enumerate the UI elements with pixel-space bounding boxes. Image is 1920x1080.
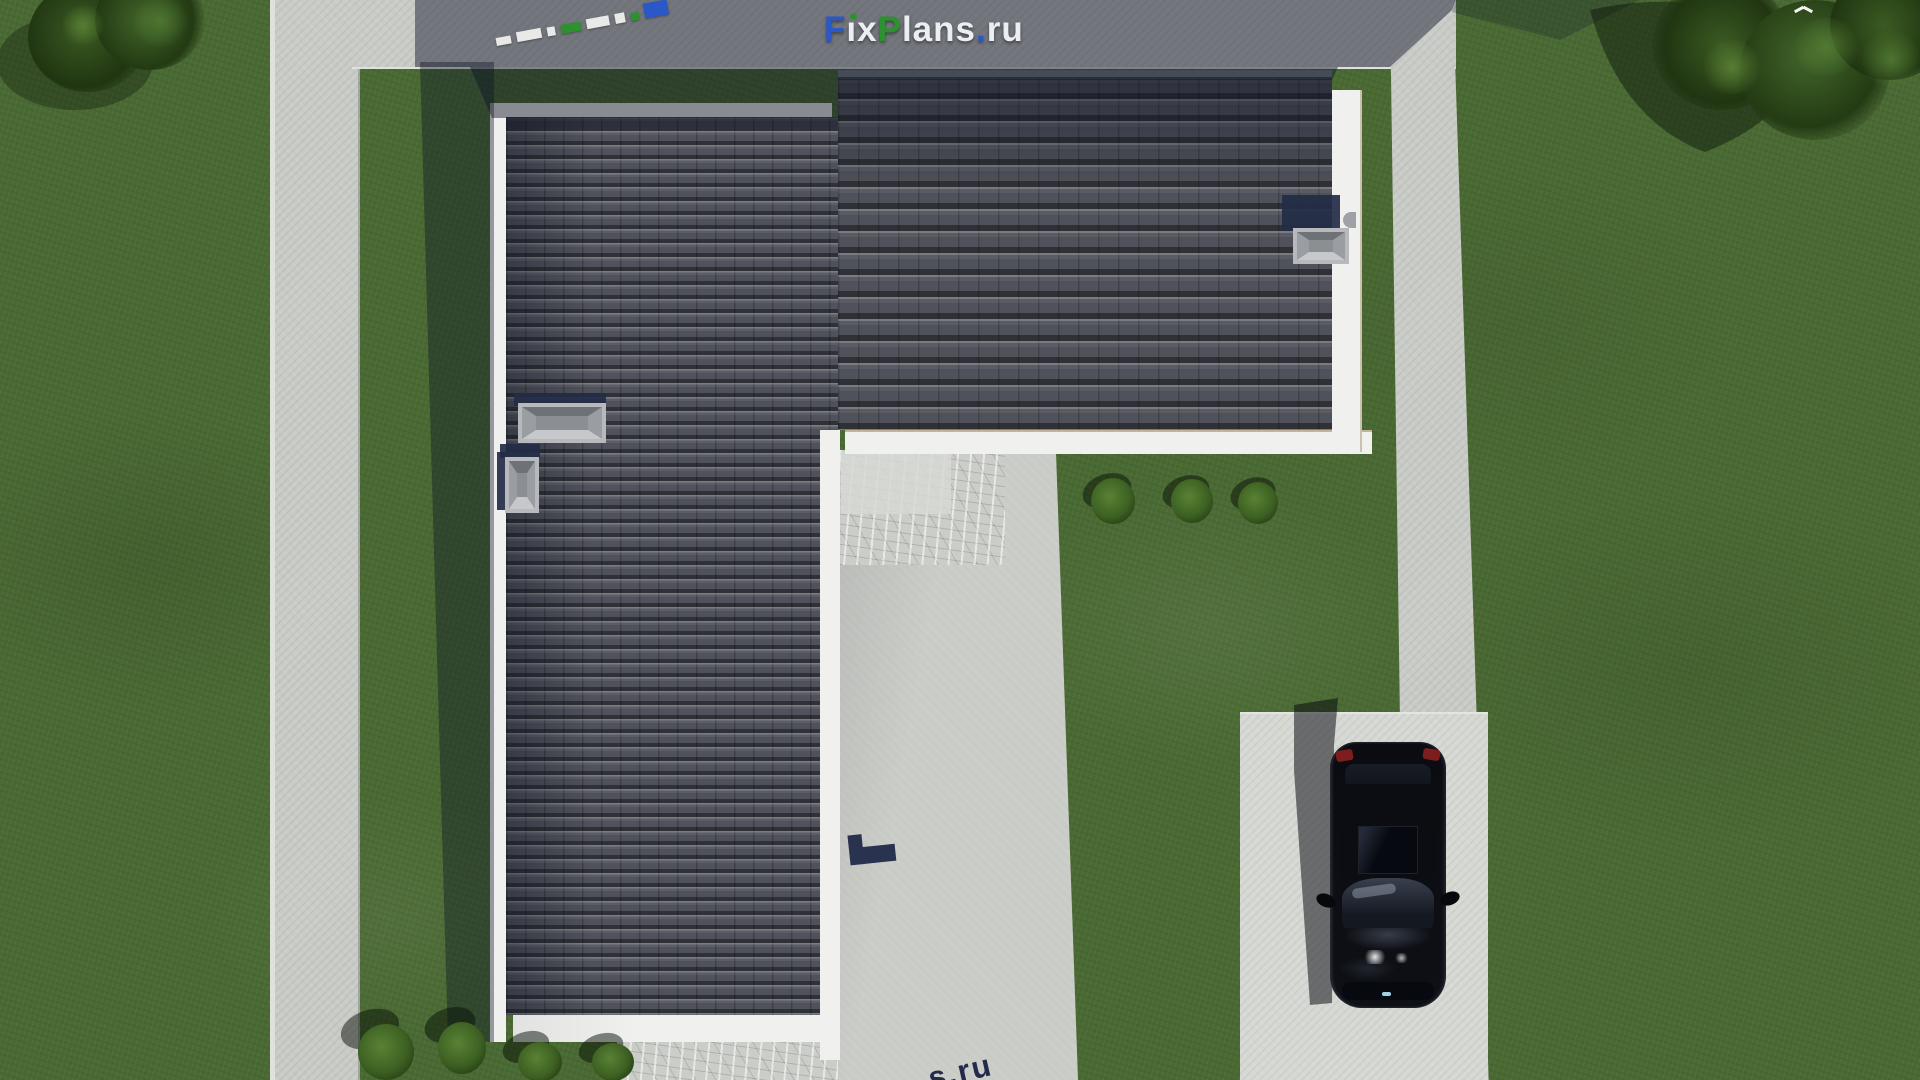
car-hood [1336, 928, 1440, 986]
bush [358, 1024, 414, 1080]
house-west-shadow [420, 62, 494, 1042]
tree-foliage-highlight [1862, 28, 1920, 90]
site-plan-render: FıxPlans.ru s.ru [0, 0, 1920, 1080]
bush [1238, 482, 1278, 524]
bush [1091, 478, 1135, 524]
brand-letter: x [857, 10, 877, 49]
car-front-bumper [1342, 982, 1434, 1000]
bush [592, 1043, 634, 1080]
brand-letter: . [976, 10, 987, 49]
tree-foliage-highlight [1700, 40, 1764, 94]
car-front-marker [1382, 992, 1391, 996]
tree-foliage-highlight [1790, 18, 1862, 76]
bird [1794, 4, 1814, 14]
watermark-block [546, 26, 556, 36]
brand-logo: FıxPlans.ru [824, 10, 1024, 50]
car [1290, 690, 1500, 1020]
shadow-overlay [0, 0, 1920, 1080]
brand-letter: lans [902, 10, 976, 49]
watermark-block [614, 12, 626, 24]
car-hood-glint [1394, 953, 1409, 963]
bush [1171, 479, 1213, 523]
car-sunroof [1358, 826, 1418, 874]
car-hood-glint [1362, 950, 1388, 964]
watermark-block [630, 12, 639, 21]
bush [438, 1022, 486, 1074]
brand-letter: P [878, 10, 902, 49]
brand-letter: F [824, 10, 846, 49]
bird-wing [1803, 6, 1813, 13]
tree-foliage-highlight [60, 5, 106, 45]
bush [518, 1042, 562, 1080]
logo-i-dot [850, 13, 857, 20]
brand-letter: ru [987, 10, 1024, 49]
